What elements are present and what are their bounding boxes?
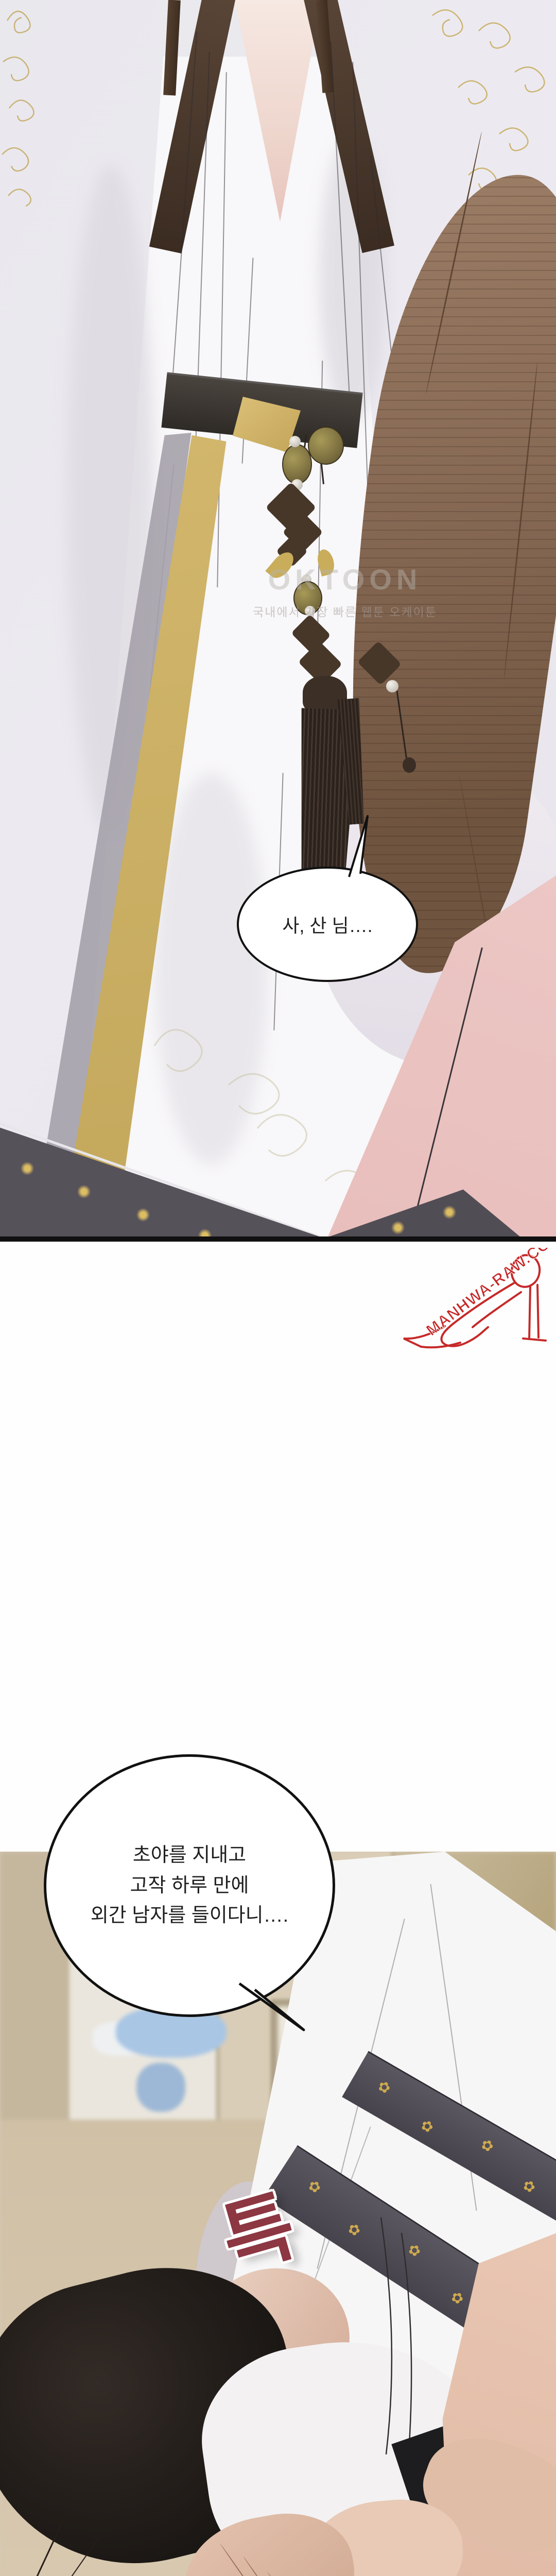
gold-flower: ✿ bbox=[418, 2116, 437, 2137]
hem-gold-flower bbox=[391, 1221, 405, 1234]
gold-flower: ✿ bbox=[344, 2219, 364, 2240]
panel-1-border bbox=[0, 1236, 556, 1242]
hem-gold-flower bbox=[21, 1162, 34, 1175]
blue-bedding bbox=[136, 2063, 185, 2112]
gold-flower: ✿ bbox=[375, 2077, 394, 2097]
gold-flower: ✿ bbox=[305, 2176, 324, 2197]
jade-bead bbox=[308, 427, 344, 465]
hem-gold-flower bbox=[77, 1185, 91, 1198]
white-bead bbox=[305, 606, 315, 616]
gold-flower: ✿ bbox=[478, 2135, 497, 2156]
gold-flower: ✿ bbox=[448, 2287, 467, 2308]
hem-gold-flower bbox=[136, 1208, 150, 1222]
speech-bubble-1: 사, 산 님…. bbox=[237, 867, 418, 982]
speech-bubble-2-line2: 고작 하루 만에 bbox=[130, 1871, 249, 1901]
speech-bubble-2: 초야를 지내고 고작 하루 만에 외간 남자를 들이다니…. bbox=[44, 1754, 335, 2017]
panel-1-scene: OKTOON 국내에서 가장 빠른 웹툰 오케이툰 사, 산 님…. bbox=[0, 0, 556, 1236]
speech-bubble-2-line1: 초야를 지내고 bbox=[133, 1840, 246, 1871]
hem-gold-flower bbox=[443, 1206, 456, 1219]
speech-bubble-1-text: 사, 산 님…. bbox=[282, 911, 372, 938]
webtoon-page: OKTOON 국내에서 가장 빠른 웹툰 오케이툰 사, 산 님…. MANHW… bbox=[0, 0, 556, 2576]
white-bead bbox=[289, 436, 301, 447]
jade-bead bbox=[282, 444, 312, 484]
speech-bubble-2-line3: 외간 남자를 들이다니…. bbox=[91, 1901, 288, 1931]
manhwa-raw-stamp: MANHWA-RAW.COM bbox=[401, 1248, 555, 1359]
stamp-text: MANHWA-RAW.COM bbox=[423, 1248, 555, 1340]
gold-embroidery-left bbox=[0, 0, 67, 222]
gold-flower: ✿ bbox=[519, 2176, 538, 2197]
speech-bubble-1-tail bbox=[342, 812, 383, 880]
speech-bubble-2-tail bbox=[234, 1978, 311, 2035]
small-dark-bead bbox=[403, 757, 416, 773]
